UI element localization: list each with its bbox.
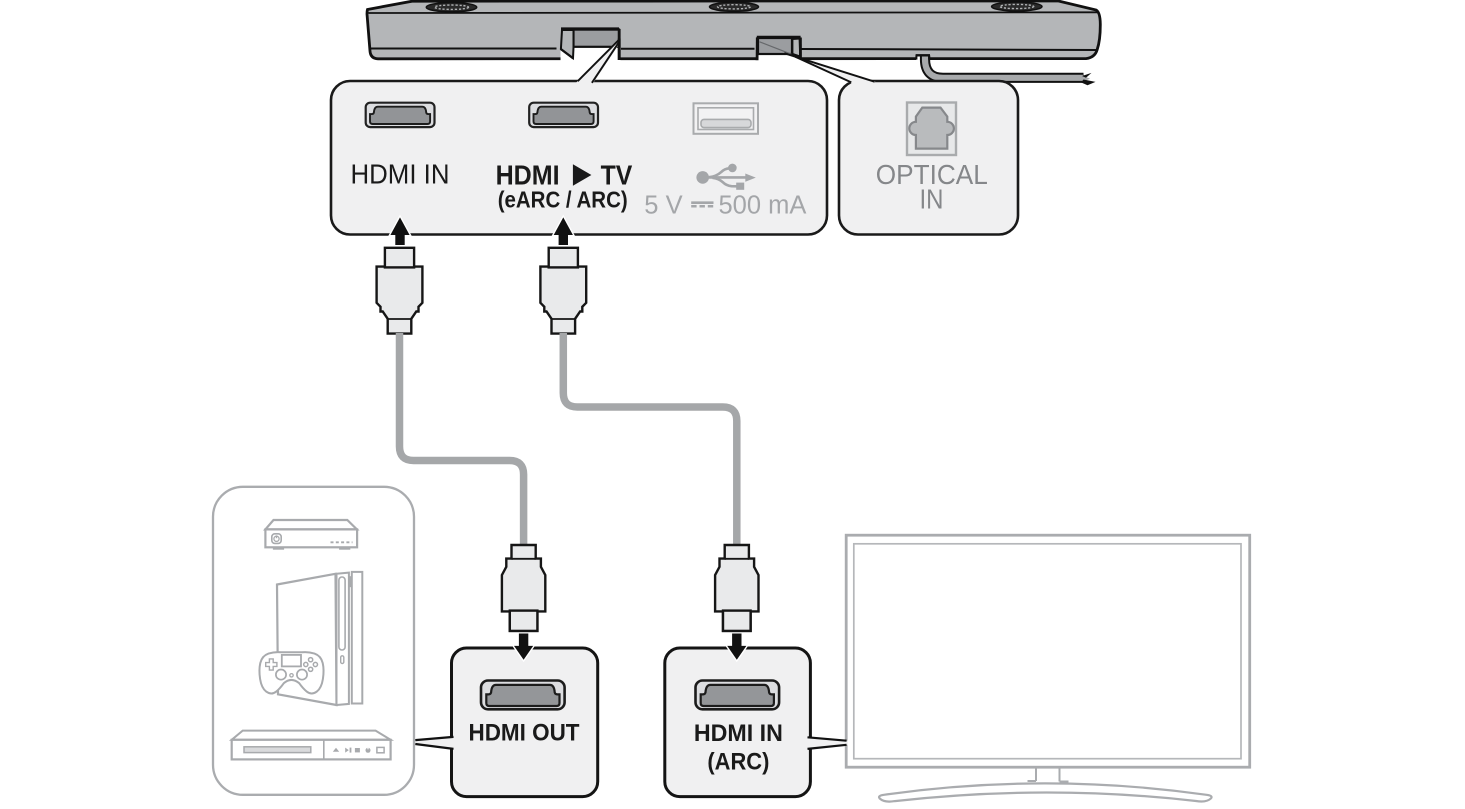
svg-text:(eARC / ARC): (eARC / ARC) xyxy=(498,187,628,213)
svg-text:(ARC): (ARC) xyxy=(707,749,769,776)
svg-text:HDMI OUT: HDMI OUT xyxy=(469,720,580,747)
svg-text:HDMI IN: HDMI IN xyxy=(694,721,783,747)
svg-text:500 mA: 500 mA xyxy=(719,191,807,219)
svg-text:5 V: 5 V xyxy=(644,191,682,219)
svg-text:HDMI IN: HDMI IN xyxy=(351,158,450,189)
svg-text:IN: IN xyxy=(920,183,944,214)
